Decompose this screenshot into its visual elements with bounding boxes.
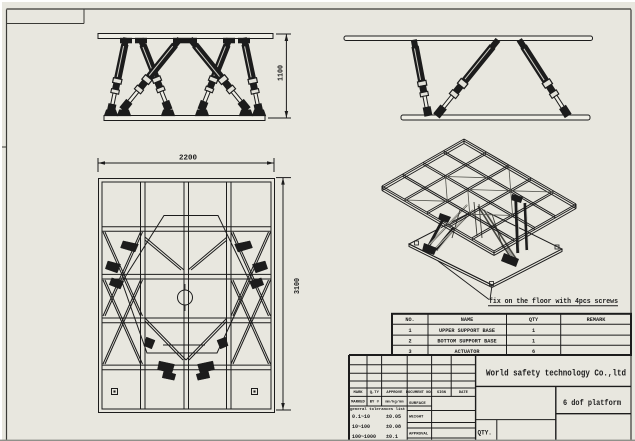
svg-text:6 dof platform: 6 dof platform [563, 399, 621, 408]
svg-text:MARK: MARK [353, 391, 363, 395]
svg-text:1: 1 [532, 338, 535, 344]
svg-text:10~100: 10~100 [352, 424, 370, 430]
svg-text:SURFACE: SURFACE [409, 402, 426, 406]
svg-text:2200: 2200 [179, 155, 197, 163]
svg-text:DATE: DATE [459, 391, 469, 395]
svg-text:general tolerances list: general tolerances list [350, 407, 406, 412]
svg-text:1100: 1100 [278, 65, 286, 81]
svg-text:APPROVAL: APPROVAL [409, 433, 429, 437]
svg-text:Q,TY: Q,TY [370, 391, 380, 395]
svg-text:3100: 3100 [294, 278, 302, 294]
svg-text:NO.: NO. [405, 317, 414, 323]
svg-text:±0.05: ±0.05 [386, 414, 401, 420]
svg-text:DOCUMENT NO.: DOCUMENT NO. [406, 391, 433, 395]
svg-text:100~1000: 100~1000 [352, 434, 376, 440]
svg-text:MARKED: MARKED [351, 401, 365, 405]
svg-text:0.1~10: 0.1~10 [352, 414, 370, 420]
svg-text:SIGN: SIGN [437, 391, 447, 395]
svg-text:1: 1 [532, 328, 535, 334]
svg-text:World safety technology Co.,lt: World safety technology Co.,ltd [486, 369, 626, 379]
svg-text:BY #: BY # [370, 401, 380, 405]
svg-text:BOTTOM SUPPORT BASE: BOTTOM SUPPORT BASE [437, 338, 496, 344]
svg-text:±0.08: ±0.08 [386, 424, 401, 430]
svg-text:1: 1 [408, 328, 411, 334]
svg-text:REMARK: REMARK [587, 317, 607, 323]
svg-text:2: 2 [408, 338, 411, 344]
svg-text:UPPER SUPPORT BASE: UPPER SUPPORT BASE [439, 328, 495, 334]
svg-text:mm/kg/mm: mm/kg/mm [385, 400, 404, 405]
svg-text:±0.1: ±0.1 [386, 434, 398, 440]
svg-text:APPROVE: APPROVE [386, 391, 403, 395]
svg-text:fix on the floor with 4pcs scr: fix on the floor with 4pcs screws [489, 298, 618, 306]
svg-text:QTY: QTY [529, 317, 539, 323]
svg-text:NAME: NAME [461, 317, 473, 323]
svg-text:WEIGHT: WEIGHT [409, 416, 424, 420]
svg-text:QTY.: QTY. [478, 430, 492, 437]
